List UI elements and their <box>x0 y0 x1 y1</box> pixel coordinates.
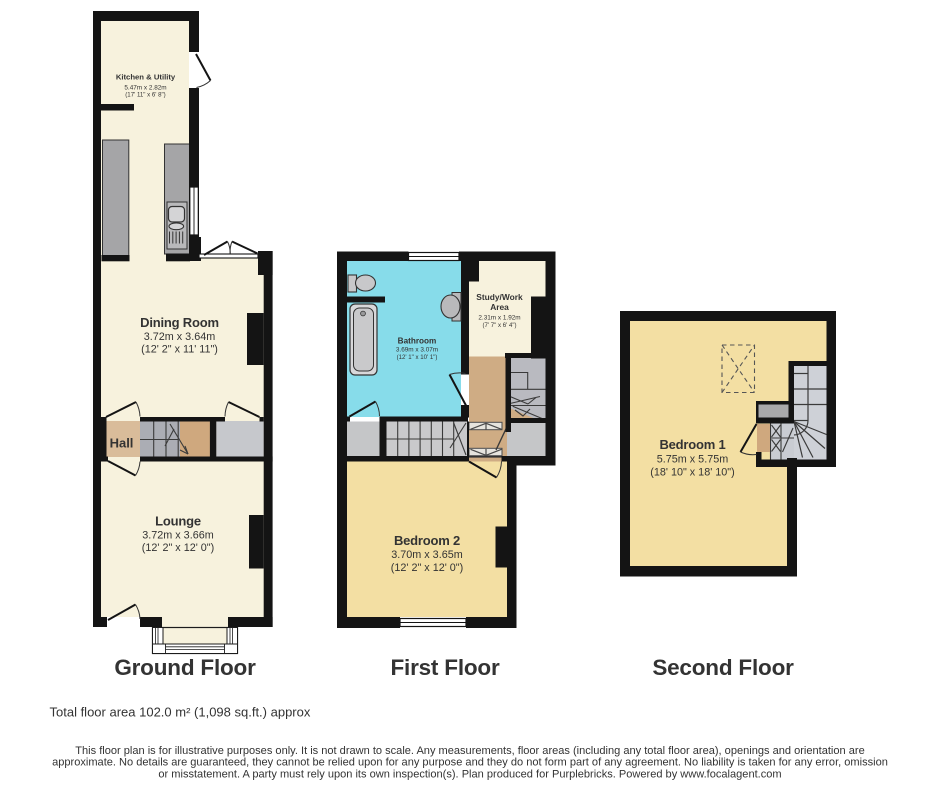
svg-text:Dining Room: Dining Room <box>140 315 219 330</box>
svg-text:(18' 10" x 18' 10"): (18' 10" x 18' 10") <box>650 467 734 479</box>
svg-text:This floor plan is for illustr: This floor plan is for illustrative purp… <box>75 745 864 757</box>
svg-text:(7' 7" x 6' 4"): (7' 7" x 6' 4") <box>482 322 516 329</box>
svg-text:5.47m x 2.82m: 5.47m x 2.82m <box>124 85 166 92</box>
svg-text:Bedroom 2: Bedroom 2 <box>394 533 460 548</box>
svg-text:3.72m x 3.64m: 3.72m x 3.64m <box>144 331 215 343</box>
svg-text:(17' 11" x 6' 8"): (17' 11" x 6' 8") <box>125 92 165 99</box>
svg-text:Study/Work: Study/Work <box>476 292 523 302</box>
svg-text:5.75m x 5.75m: 5.75m x 5.75m <box>657 454 728 466</box>
svg-text:Kitchen & Utility: Kitchen & Utility <box>116 73 176 82</box>
svg-text:Bathroom: Bathroom <box>398 337 437 346</box>
svg-text:Ground Floor: Ground Floor <box>114 655 256 680</box>
svg-text:Total floor area 102.0 m² (1,0: Total floor area 102.0 m² (1,098 sq.ft.)… <box>50 705 311 720</box>
svg-text:Bedroom 1: Bedroom 1 <box>659 437 725 452</box>
svg-text:3.70m x 3.65m: 3.70m x 3.65m <box>391 549 462 561</box>
svg-text:Lounge: Lounge <box>155 514 201 529</box>
svg-text:(12' 2" x 11' 11"): (12' 2" x 11' 11") <box>141 344 218 356</box>
svg-text:approximate. No details are gu: approximate. No details are guaranteed, … <box>52 757 888 769</box>
svg-text:First Floor: First Floor <box>390 655 499 680</box>
svg-text:or misstatement. A party must: or misstatement. A party must rely upon … <box>158 768 781 780</box>
svg-text:(12' 2" x 12' 0"): (12' 2" x 12' 0") <box>142 542 214 554</box>
svg-text:(12' 1" x 10' 1"): (12' 1" x 10' 1") <box>397 354 438 361</box>
svg-text:2.31m x 1.92m: 2.31m x 1.92m <box>478 315 520 322</box>
svg-text:Area: Area <box>490 302 509 312</box>
svg-text:3.72m x 3.66m: 3.72m x 3.66m <box>142 530 213 542</box>
svg-text:3.69m x 3.07m: 3.69m x 3.07m <box>396 347 438 354</box>
svg-text:Hall: Hall <box>110 436 134 451</box>
svg-text:Second Floor: Second Floor <box>652 655 794 680</box>
svg-text:(12' 2" x 12' 0"): (12' 2" x 12' 0") <box>391 562 463 574</box>
